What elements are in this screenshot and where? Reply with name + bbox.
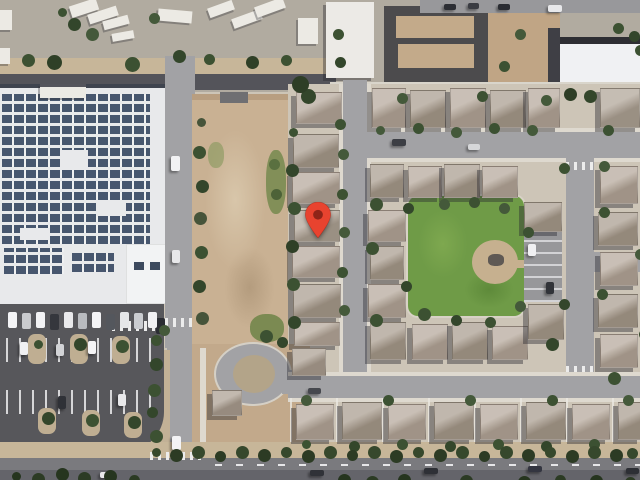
landscape-island	[28, 334, 46, 364]
house	[598, 294, 638, 328]
house	[434, 402, 474, 440]
satellite-map[interactable]	[0, 0, 640, 480]
house	[293, 134, 339, 168]
rooftop-unit	[134, 262, 144, 270]
house	[370, 322, 406, 360]
house	[528, 88, 560, 128]
roof-patch	[96, 200, 126, 216]
cul-de-sac-island	[233, 355, 275, 393]
house	[444, 164, 480, 198]
crosswalk	[112, 321, 164, 331]
car	[58, 396, 66, 409]
house	[370, 246, 404, 280]
weed-patch	[266, 150, 286, 214]
shed	[298, 18, 318, 44]
crosswalk	[566, 162, 594, 170]
car	[308, 388, 321, 394]
parking-stripes	[6, 390, 154, 414]
house	[600, 88, 640, 128]
house	[572, 404, 610, 440]
house	[370, 164, 404, 198]
sidewalk	[367, 128, 640, 132]
car	[468, 144, 480, 150]
car	[528, 466, 542, 472]
landscape-island	[112, 336, 130, 364]
playground-equipment	[488, 254, 504, 266]
house	[600, 252, 638, 286]
warehouse-annex	[126, 244, 168, 304]
car	[548, 5, 562, 12]
landscape-island	[124, 412, 142, 438]
house	[600, 334, 638, 368]
landscape-island	[82, 410, 100, 436]
trees-parking	[34, 340, 43, 349]
house	[410, 90, 446, 128]
car	[528, 244, 536, 256]
yard-court	[396, 16, 474, 38]
yard-court	[398, 44, 474, 68]
house	[296, 404, 334, 440]
house	[342, 402, 382, 440]
white-building-a	[326, 2, 374, 78]
house	[368, 210, 406, 242]
house	[480, 404, 518, 440]
park-parking-lot	[524, 230, 562, 302]
house	[408, 166, 442, 198]
solar-panel-array	[4, 248, 64, 274]
house	[412, 324, 448, 360]
house	[492, 326, 528, 360]
trees-main-road-row	[152, 448, 161, 457]
trees-pin-column	[289, 128, 298, 137]
truck-row	[548, 28, 560, 90]
house	[292, 172, 340, 204]
trees-backyards-south	[302, 440, 311, 449]
house	[292, 348, 326, 376]
solar-panel-array	[72, 250, 114, 272]
south-street	[288, 376, 640, 398]
pin-body	[305, 202, 330, 238]
car	[172, 250, 180, 263]
house	[526, 402, 566, 440]
crosswalk	[165, 318, 195, 327]
car	[88, 341, 96, 354]
car	[56, 344, 64, 356]
lane-markings	[215, 464, 640, 466]
car	[310, 470, 324, 476]
car	[171, 156, 180, 171]
roof-patch	[20, 228, 50, 240]
west-road	[165, 56, 195, 348]
car	[498, 4, 510, 10]
house	[598, 212, 638, 246]
house	[490, 90, 526, 128]
pin-dot	[313, 210, 323, 220]
car	[546, 282, 554, 294]
car	[626, 468, 639, 474]
trees-residential	[376, 126, 385, 135]
house	[482, 166, 518, 198]
parked-cars-row	[8, 312, 17, 328]
house	[388, 404, 426, 440]
car	[172, 436, 181, 450]
car	[444, 4, 456, 10]
trees-dirt-lot	[197, 118, 206, 127]
trees-bottom-edge	[12, 472, 21, 480]
house	[292, 246, 340, 278]
house	[452, 322, 488, 360]
trailer	[0, 48, 10, 64]
car	[100, 472, 112, 478]
house	[372, 88, 406, 128]
weed-patch	[250, 314, 284, 342]
house	[294, 322, 340, 346]
east-street	[566, 158, 594, 380]
house	[368, 284, 406, 318]
roof-patch	[60, 150, 88, 170]
house	[212, 390, 242, 416]
house	[600, 166, 638, 204]
sidewalk	[200, 348, 206, 452]
car	[468, 3, 479, 9]
landscape-island	[70, 334, 88, 364]
vacant-dirt-lot	[192, 100, 288, 350]
storage-trailer	[220, 92, 248, 103]
house	[293, 284, 341, 318]
landscape-island	[38, 408, 56, 434]
location-pin[interactable]	[305, 202, 331, 238]
house	[618, 402, 640, 440]
trailer	[0, 10, 12, 30]
car	[20, 342, 28, 355]
center-street	[343, 80, 367, 382]
east-west-street	[367, 132, 640, 158]
car	[118, 394, 126, 406]
sidewalk	[367, 158, 640, 162]
trailer	[40, 84, 86, 98]
trees-north	[58, 8, 67, 17]
house	[528, 304, 564, 340]
house	[524, 202, 562, 232]
car	[424, 468, 438, 474]
weed-patch	[208, 142, 224, 168]
rooftop-unit	[150, 262, 160, 270]
sidewalk	[288, 372, 640, 376]
house	[450, 88, 486, 128]
house	[296, 92, 342, 124]
car	[392, 139, 406, 146]
